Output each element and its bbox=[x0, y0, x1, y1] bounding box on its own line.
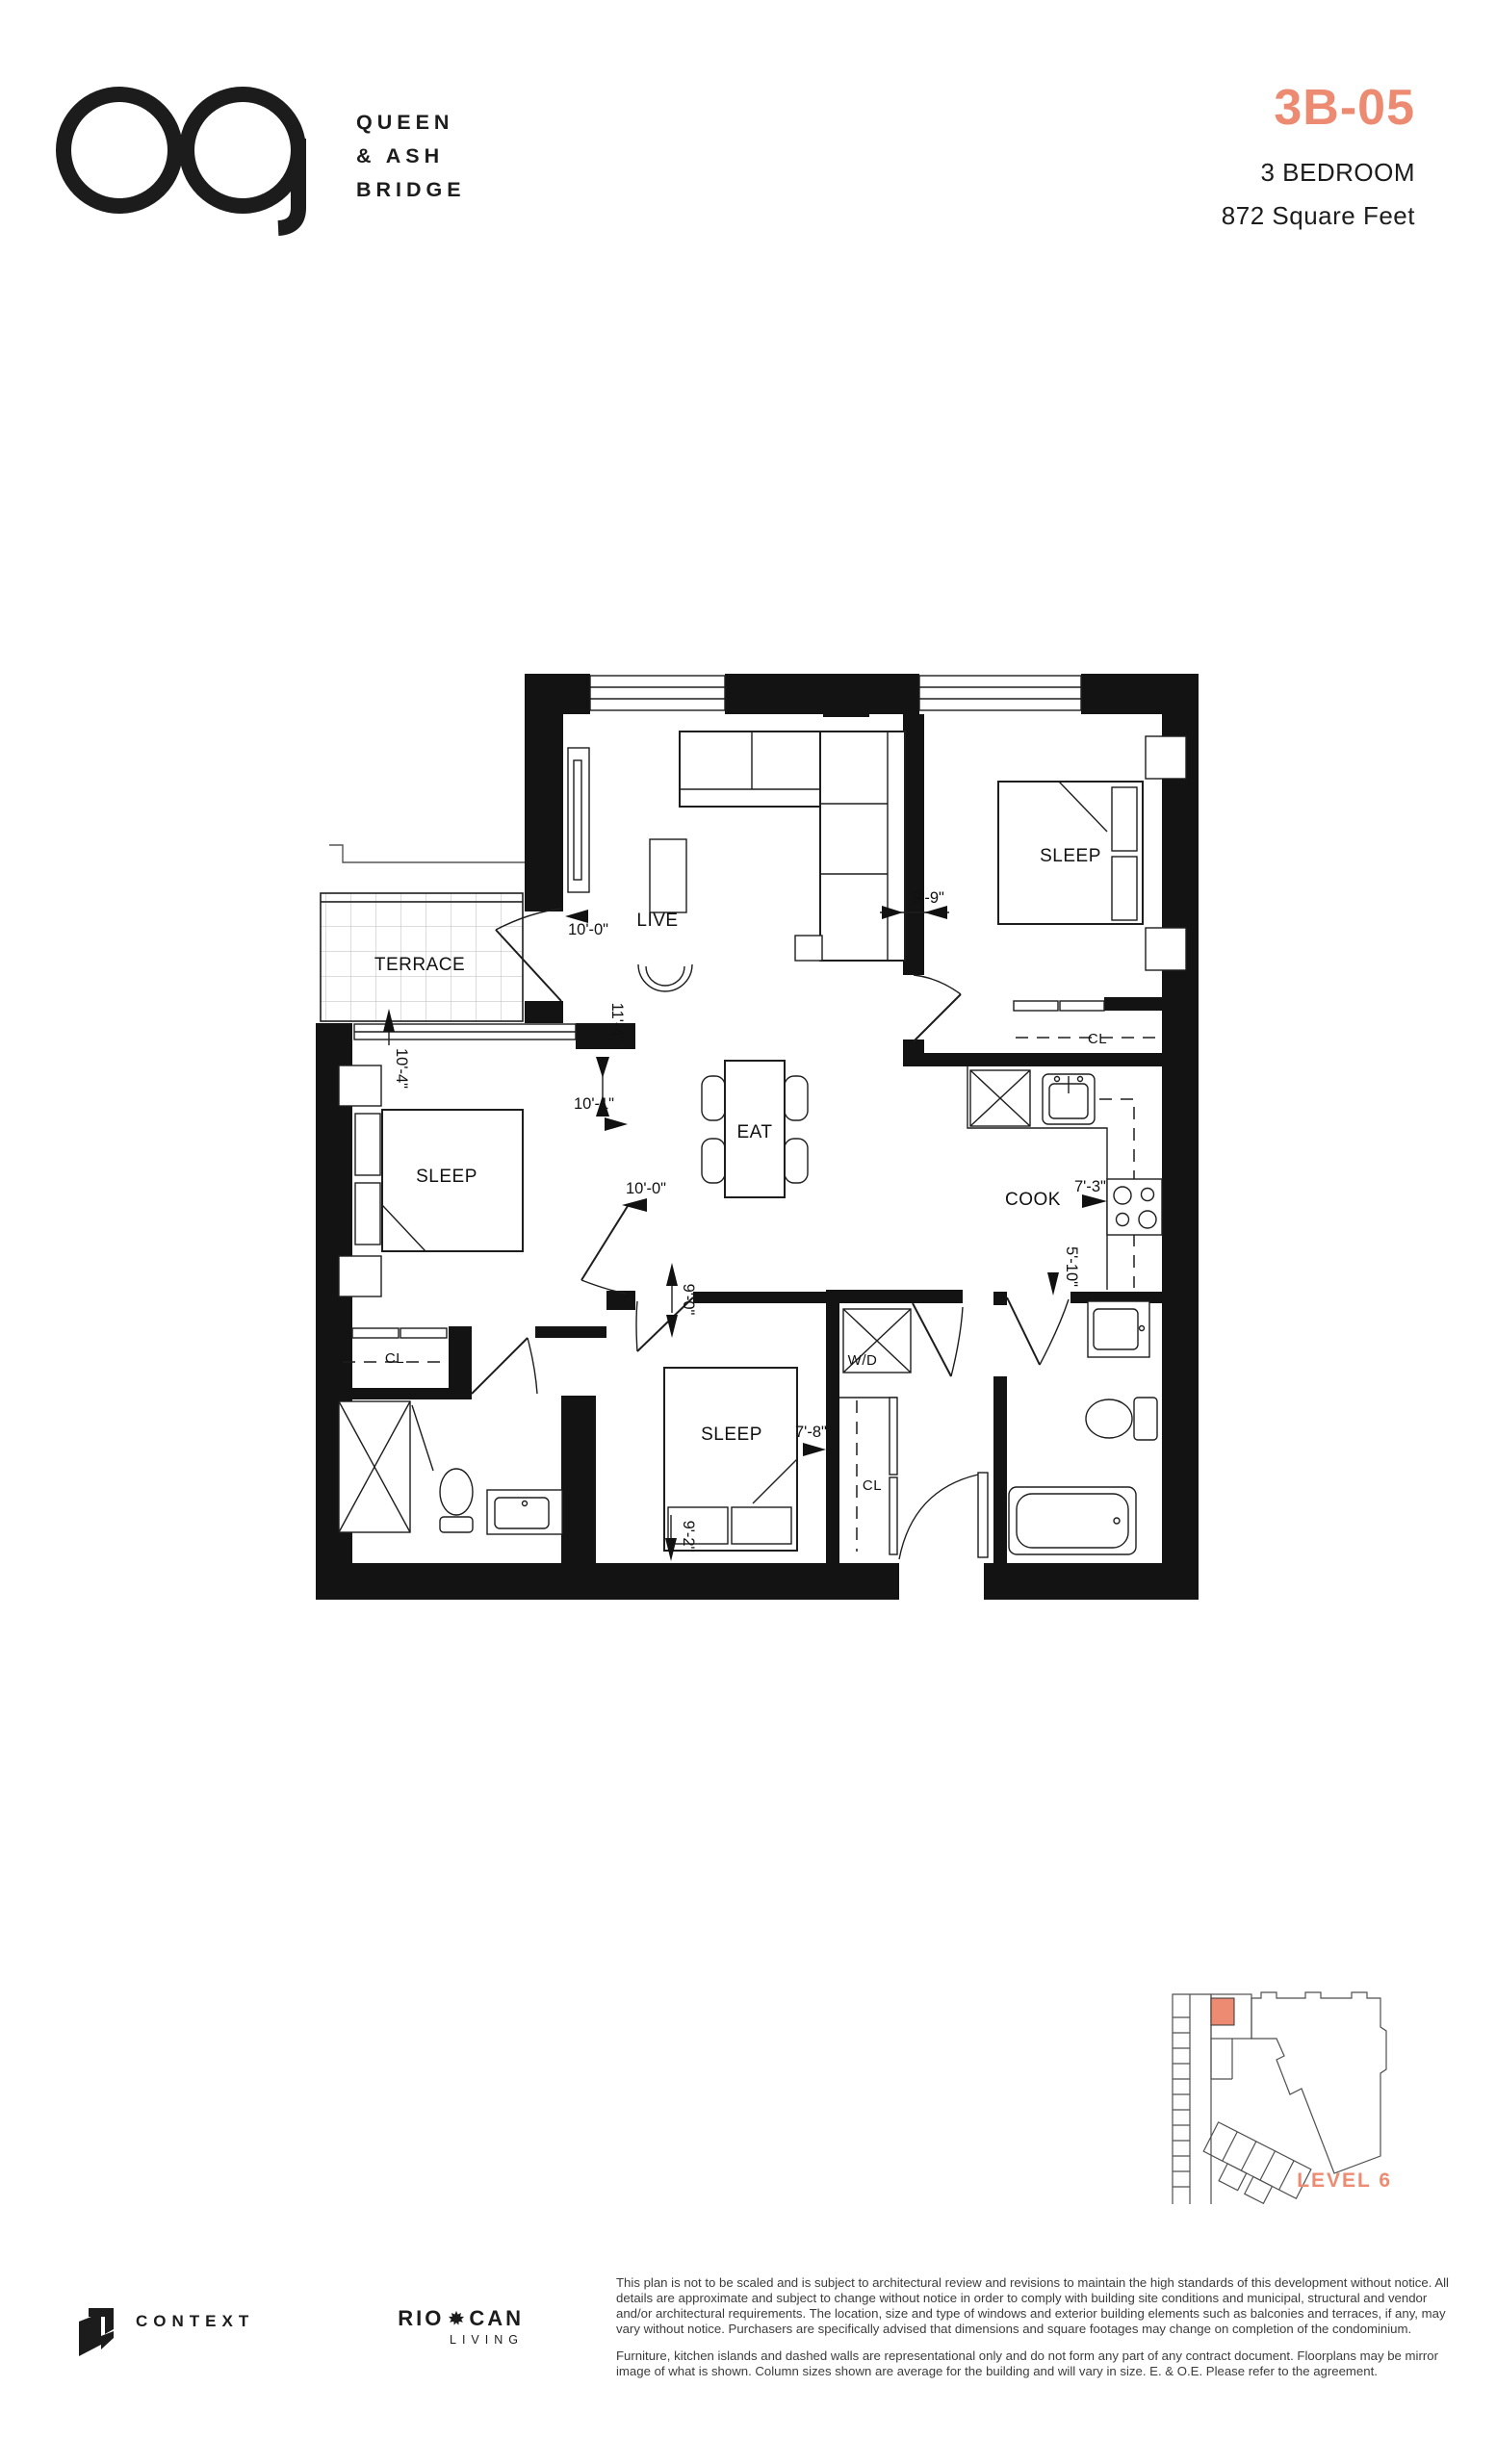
room-label-terrace: TERRACE bbox=[374, 955, 465, 975]
room-label-live: LIVE bbox=[636, 911, 678, 931]
dim-sleep1-width2: 10'-0" bbox=[626, 1180, 666, 1197]
sofa bbox=[680, 731, 905, 961]
dim-live-depth: 11'-4" bbox=[608, 1003, 626, 1042]
unit-code: 3B-05 bbox=[1222, 83, 1415, 133]
nightstand bbox=[339, 1065, 381, 1106]
washer-dryer: W/D bbox=[843, 1309, 911, 1373]
floorplan-sheet: { "accent_color": "#ED8B72", "brand": { … bbox=[0, 0, 1496, 2464]
unit-title-block: 3B-05 3 BEDROOM 872 Square Feet bbox=[1222, 83, 1415, 231]
riocan-text-right: CAN bbox=[469, 2306, 524, 2331]
dim-cook-depth: 5'-10" bbox=[1063, 1246, 1080, 1287]
nightstand bbox=[1146, 736, 1186, 779]
toilet bbox=[1086, 1398, 1157, 1440]
unit-type: 3 BEDROOM bbox=[1222, 158, 1415, 188]
dim-hall-depth: 9'-0" bbox=[680, 1284, 697, 1316]
dim-sleep1-depth: 10'-4" bbox=[393, 1048, 410, 1089]
kitchen-sink bbox=[1043, 1074, 1095, 1124]
riocan-logo: RIO CAN LIVING bbox=[360, 2306, 524, 2347]
brand-line3: BRIDGE bbox=[356, 178, 466, 201]
qa-logo-icon bbox=[64, 94, 298, 228]
closet-label: CL bbox=[385, 1350, 404, 1367]
room-label-sleep3: SLEEP bbox=[701, 1424, 762, 1445]
riocan-living-text: LIVING bbox=[360, 2333, 524, 2347]
closet-label: CL bbox=[1088, 1031, 1107, 1047]
dim-live-width: 10'-0" bbox=[568, 921, 608, 938]
room-label-sleep1: SLEEP bbox=[416, 1167, 477, 1187]
lounge-chair bbox=[638, 964, 692, 991]
bathtub bbox=[1009, 1487, 1136, 1554]
context-logo: CONTEXT bbox=[77, 2306, 254, 2370]
dim-cook-width: 7'-3" bbox=[1074, 1178, 1106, 1195]
disclaimer-paragraph-1: This plan is not to be scaled and is sub… bbox=[616, 2275, 1457, 2336]
laundry-label: W/D bbox=[848, 1352, 878, 1369]
keyplan: LEVEL 6 bbox=[1136, 1963, 1415, 2204]
maple-leaf-icon bbox=[448, 2310, 465, 2327]
shower bbox=[339, 1401, 433, 1532]
vanity-sink bbox=[1088, 1301, 1149, 1357]
nightstand bbox=[339, 1256, 381, 1296]
brand-line1: QUEEN bbox=[356, 111, 453, 134]
dim-sleep1-width: 10'-1" bbox=[574, 1095, 614, 1113]
unit-area: 872 Square Feet bbox=[1222, 201, 1415, 231]
vanity-sink bbox=[487, 1490, 562, 1534]
floor-plan: TERRACE LIVE SLEE bbox=[289, 654, 1223, 1617]
disclaimer: This plan is not to be scaled and is sub… bbox=[616, 2275, 1457, 2379]
dim-sleep2-width: 9'-9" bbox=[913, 889, 944, 907]
closet-sleep1: CL bbox=[343, 1328, 447, 1367]
closet-middle: CL bbox=[839, 1398, 897, 1554]
stove bbox=[1107, 1179, 1162, 1235]
terrace: TERRACE bbox=[321, 845, 525, 1021]
toilet bbox=[440, 1469, 473, 1532]
keyplan-unit-highlight bbox=[1211, 1998, 1234, 2025]
context-logo-text: CONTEXT bbox=[136, 2312, 254, 2331]
dim-sleep3-width: 7'-8" bbox=[795, 1424, 827, 1441]
tv-unit bbox=[568, 748, 589, 892]
riocan-text-left: RIO bbox=[398, 2306, 444, 2331]
fridge bbox=[970, 1070, 1030, 1126]
qa-brand-logo: QUEEN & ASH BRIDGE bbox=[56, 65, 508, 239]
room-label-sleep2: SLEEP bbox=[1040, 846, 1101, 866]
keyplan-level-label: LEVEL 6 bbox=[1297, 2169, 1392, 2192]
context-logo-icon bbox=[77, 2306, 121, 2370]
room-label-eat: EAT bbox=[736, 1122, 772, 1142]
entry-door-leaf bbox=[978, 1473, 988, 1557]
coffee-table bbox=[650, 839, 686, 912]
nightstand bbox=[1146, 928, 1186, 970]
brand-line2: & ASH bbox=[356, 144, 444, 167]
closet-label: CL bbox=[863, 1477, 882, 1494]
dim-sleep3-depth: 9'-2" bbox=[680, 1521, 697, 1553]
room-label-cook: COOK bbox=[1005, 1190, 1061, 1210]
disclaimer-paragraph-2: Furniture, kitchen islands and dashed wa… bbox=[616, 2348, 1457, 2379]
